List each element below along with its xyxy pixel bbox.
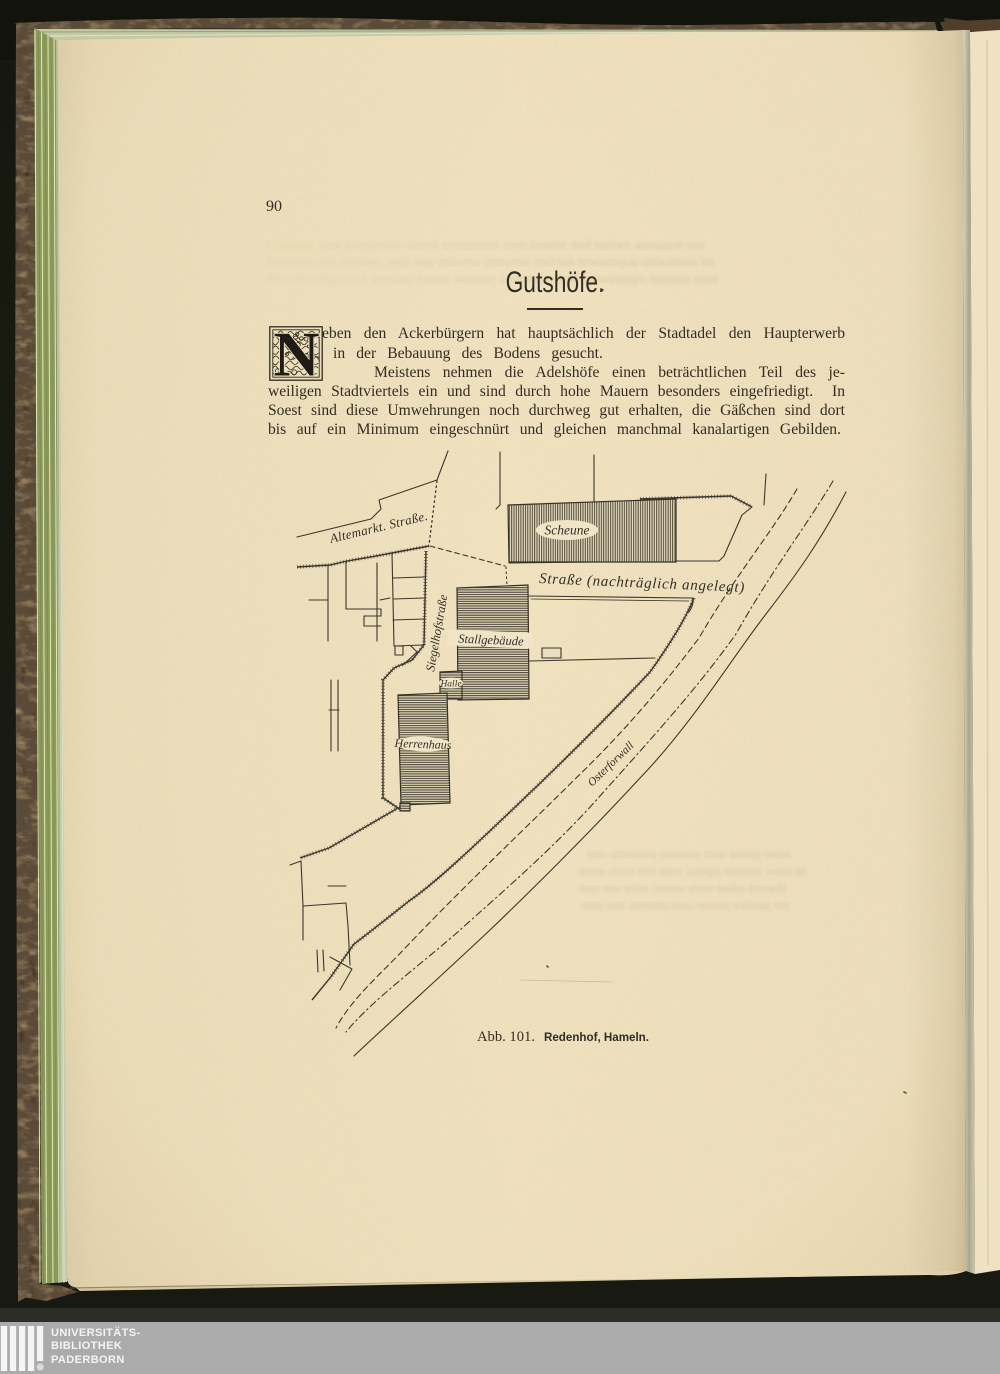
svg-text:Siegelhofstraße: Siegelhofstraße — [423, 593, 450, 672]
svg-text:Osterforwall: Osterforwall — [586, 740, 637, 789]
svg-text:Altemarkt. Straße.: Altemarkt. Straße. — [327, 508, 429, 546]
svg-text:Scheune: Scheune — [545, 523, 590, 538]
svg-text:Herrenhaus: Herrenhaus — [393, 736, 452, 752]
svg-text:Stallgebäude: Stallgebäude — [458, 632, 524, 649]
svg-text:Straße (nachträglich angelegt): Straße (nachträglich angelegt) — [539, 571, 745, 596]
svg-text:Halle: Halle — [439, 680, 461, 690]
